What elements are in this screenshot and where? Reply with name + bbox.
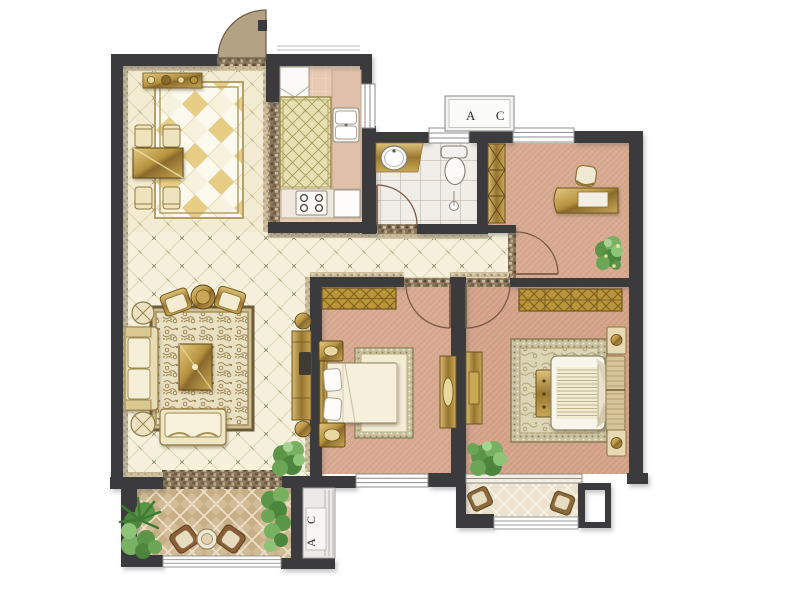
svg-text:A C: A C <box>466 108 514 123</box>
svg-text:A C: A C <box>304 510 318 547</box>
